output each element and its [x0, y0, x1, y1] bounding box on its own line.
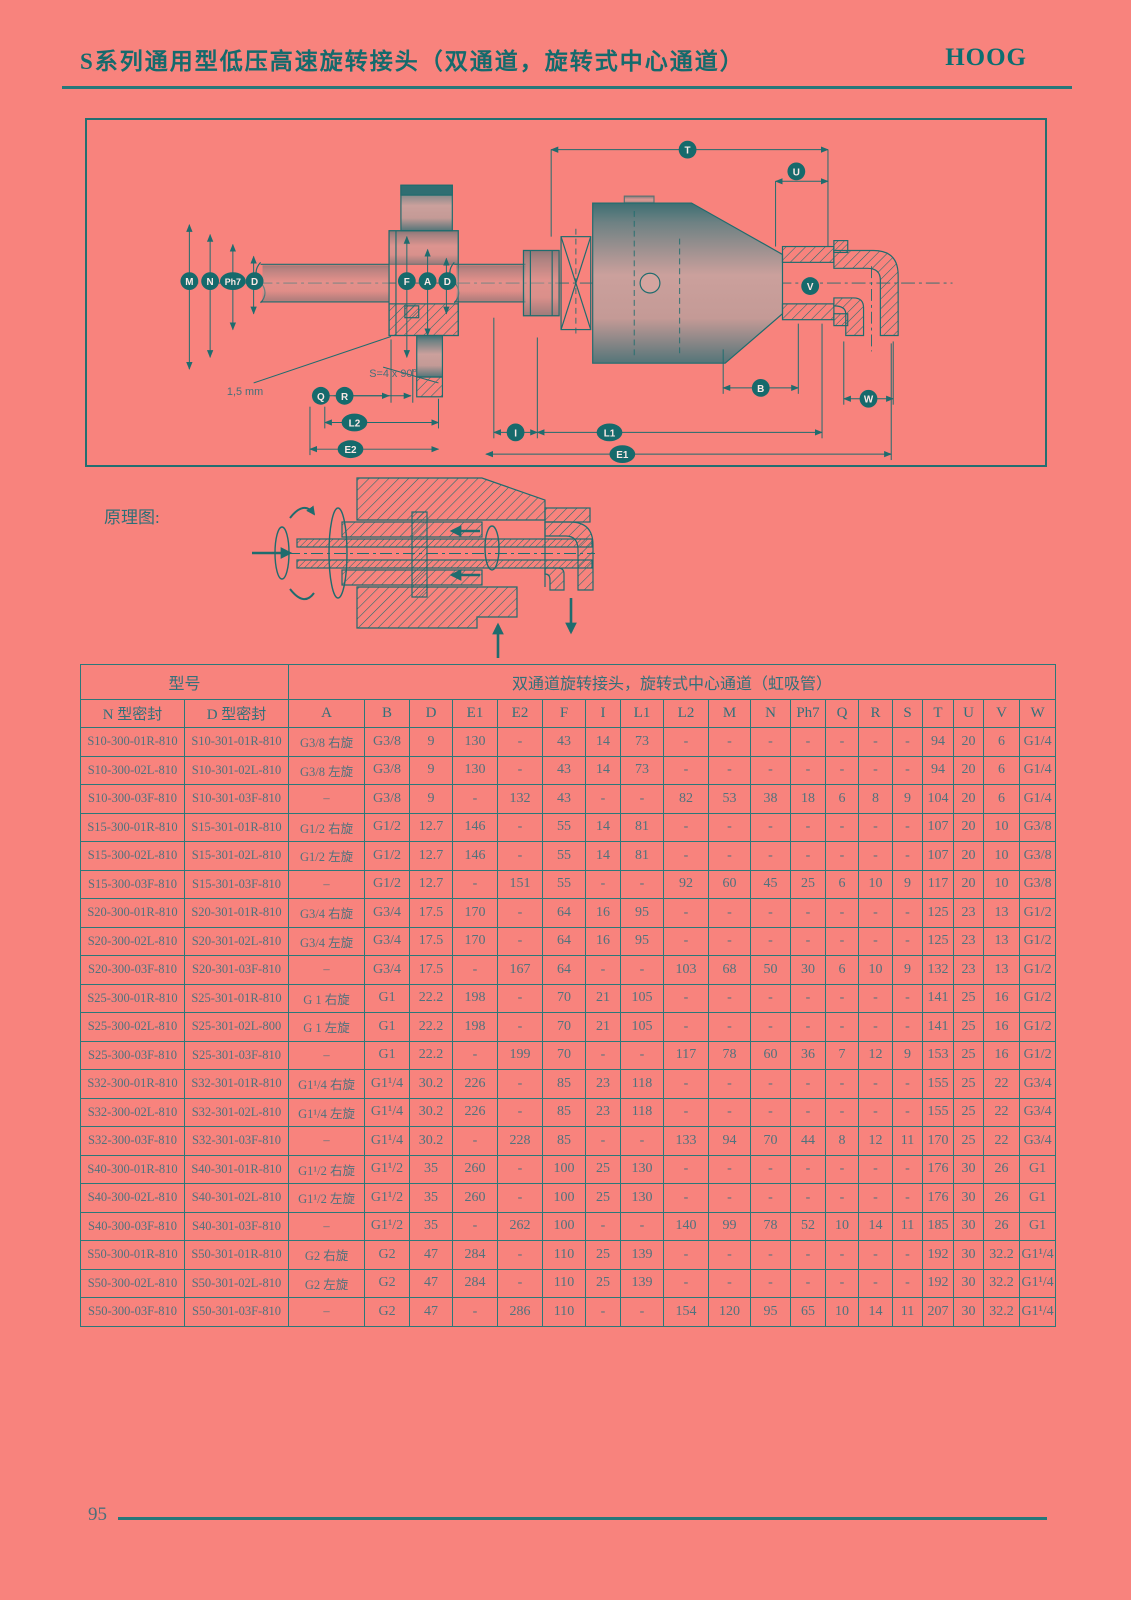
dimension-cell: 17.5 — [410, 956, 453, 985]
dimension-cell: - — [709, 1241, 751, 1270]
model-cell: S25-301-03F-810 — [185, 1041, 289, 1070]
footer-rule — [118, 1517, 1047, 1520]
dimension-cell: 117 — [664, 1041, 709, 1070]
dimension-cell: G1/4 — [1020, 728, 1056, 757]
dimension-cell: G1/2 — [1020, 956, 1056, 985]
table-row: S25-300-02L-810S25-301-02L-800G 1 左旋G122… — [81, 1013, 1056, 1042]
dim-badge-f: F — [398, 272, 416, 290]
dimension-cell: 176 — [923, 1155, 954, 1184]
dimension-cell: 6 — [826, 870, 859, 899]
dimension-cell: G1¹/4 — [365, 1098, 410, 1127]
svg-text:U: U — [793, 167, 800, 178]
dimension-cell: - — [826, 842, 859, 871]
dimension-cell: - — [664, 1070, 709, 1099]
dimension-cell: 55 — [543, 813, 586, 842]
dimension-cell: 23 — [586, 1070, 621, 1099]
dimension-cell: - — [498, 899, 543, 928]
dimension-cell: 70 — [751, 1127, 791, 1156]
dimension-cell: 43 — [543, 785, 586, 814]
dimension-cell: - — [826, 927, 859, 956]
dimension-cell: - — [664, 728, 709, 757]
dimension-cell: 17.5 — [410, 927, 453, 956]
dimension-cell: - — [751, 756, 791, 785]
dimension-cell: 35 — [410, 1212, 453, 1241]
dimension-cell: 20 — [954, 728, 984, 757]
dimension-cell: 30.2 — [410, 1098, 453, 1127]
dimension-cell: 130 — [621, 1184, 664, 1213]
dimension-cell: G3/4 — [1020, 1127, 1056, 1156]
dimension-cell: - — [709, 1098, 751, 1127]
dimension-cell: - — [791, 756, 826, 785]
dimension-cell: 107 — [923, 813, 954, 842]
svg-text:E2: E2 — [344, 445, 357, 456]
model-cell: S50-301-02L-810 — [185, 1269, 289, 1298]
column-header: N 型密封 — [81, 700, 185, 728]
dimension-cell: - — [826, 984, 859, 1013]
dimension-cell: - — [709, 756, 751, 785]
dimension-cell: 78 — [709, 1041, 751, 1070]
dimension-cell: G1¹/2 — [365, 1155, 410, 1184]
dimension-cell: 260 — [453, 1184, 498, 1213]
dimension-cell: 140 — [664, 1212, 709, 1241]
table-row: S32-300-03F-810S32-301-03F-810–G1¹/430.2… — [81, 1127, 1056, 1156]
model-group-header: 型号 — [81, 665, 289, 700]
dim-badge-n: N — [201, 272, 219, 290]
dimension-cell: - — [893, 813, 923, 842]
dimension-cell: 85 — [543, 1127, 586, 1156]
dimension-cell: 94 — [709, 1127, 751, 1156]
dimension-cell: 14 — [859, 1298, 893, 1327]
dimension-cell: – — [289, 870, 365, 899]
dimension-cell: G2 — [365, 1298, 410, 1327]
dimension-cell: 286 — [498, 1298, 543, 1327]
dimension-cell: - — [826, 1241, 859, 1270]
dimension-cell: G1 — [365, 1041, 410, 1070]
svg-text:F: F — [404, 277, 410, 288]
dimension-cell: - — [586, 1041, 621, 1070]
model-cell: S40-301-02L-810 — [185, 1184, 289, 1213]
dim-badge-t: T — [679, 141, 697, 159]
dimension-cell: - — [498, 728, 543, 757]
dimension-cell: 16 — [984, 984, 1020, 1013]
dimension-cell: - — [453, 1127, 498, 1156]
dimension-cell: - — [791, 984, 826, 1013]
dimension-cell: 13 — [984, 899, 1020, 928]
dimension-cell: - — [893, 1155, 923, 1184]
dimension-cell: 12.7 — [410, 842, 453, 871]
dimension-cell: 20 — [954, 842, 984, 871]
dimension-cell: - — [498, 1013, 543, 1042]
dimension-cell: - — [709, 927, 751, 956]
dimension-cell: - — [709, 1070, 751, 1099]
dimension-cell: G1¹/2 右旋 — [289, 1155, 365, 1184]
dimension-cell: 107 — [923, 842, 954, 871]
table-row: S32-300-01R-810S32-301-01R-810G1¹/4 右旋G1… — [81, 1070, 1056, 1099]
dimension-cell: 30 — [954, 1155, 984, 1184]
dimension-cell: 10 — [826, 1298, 859, 1327]
dimension-cell: 13 — [984, 956, 1020, 985]
model-cell: S40-300-01R-810 — [81, 1155, 185, 1184]
dimension-cell: - — [791, 1241, 826, 1270]
dimension-cell: G2 — [365, 1241, 410, 1270]
dimension-cell: 26 — [984, 1184, 1020, 1213]
dimension-cell: 139 — [621, 1241, 664, 1270]
dimension-cell: - — [859, 927, 893, 956]
dimension-cell: 95 — [621, 927, 664, 956]
dimension-cell: - — [791, 899, 826, 928]
dimension-cell: 95 — [621, 899, 664, 928]
dimension-cell: 25 — [586, 1241, 621, 1270]
dimension-cell: - — [664, 1241, 709, 1270]
dimension-cell: 10 — [984, 842, 1020, 871]
svg-text:B: B — [757, 384, 764, 395]
model-cell: S50-301-01R-810 — [185, 1241, 289, 1270]
dimension-cell: - — [826, 1098, 859, 1127]
dimension-cell: 25 — [954, 1041, 984, 1070]
model-cell: S25-301-01R-810 — [185, 984, 289, 1013]
dimension-cell: - — [893, 899, 923, 928]
table-row: S15-300-02L-810S15-301-02L-810G1/2 左旋G1/… — [81, 842, 1056, 871]
dimension-cell: 94 — [923, 728, 954, 757]
svg-text:A: A — [424, 277, 431, 288]
svg-text:L2: L2 — [349, 418, 361, 429]
dimension-cell: - — [621, 1212, 664, 1241]
dimension-cell: 9 — [893, 1041, 923, 1070]
dimension-cell: 132 — [923, 956, 954, 985]
dimension-cell: 146 — [453, 813, 498, 842]
slots-annotation: S=4 x 90° — [369, 368, 417, 380]
dimension-cell: 153 — [923, 1041, 954, 1070]
table-row: S20-300-03F-810S20-301-03F-810–G3/417.5-… — [81, 956, 1056, 985]
dimension-cell: 23 — [954, 899, 984, 928]
dimension-cell: - — [893, 756, 923, 785]
dimension-cell: 32.2 — [984, 1241, 1020, 1270]
dimension-cell: - — [751, 899, 791, 928]
dimension-drawing: M N Ph7 D F A D Q R L2 E2 T U V B W I L1… — [85, 118, 1047, 467]
dimension-cell: - — [664, 927, 709, 956]
nipple-fitting — [523, 250, 559, 315]
dimension-cell: 118 — [621, 1098, 664, 1127]
dimension-cell: 10 — [984, 870, 1020, 899]
dimension-cell: - — [498, 1070, 543, 1099]
dimension-cell: G3/8 — [365, 785, 410, 814]
header-rule — [62, 86, 1072, 89]
dimension-cell: 30 — [954, 1269, 984, 1298]
dimension-cell: 30.2 — [410, 1127, 453, 1156]
dimension-cell: 12 — [859, 1127, 893, 1156]
column-header: D 型密封 — [185, 700, 289, 728]
column-header: W — [1020, 700, 1056, 728]
dimension-cell: 25 — [586, 1269, 621, 1298]
dimension-cell: - — [709, 1155, 751, 1184]
dimension-cell: G1 — [1020, 1155, 1056, 1184]
dimension-cell: 30.2 — [410, 1070, 453, 1099]
dimension-cell: – — [289, 1298, 365, 1327]
dimension-cell: 12 — [859, 1041, 893, 1070]
dimension-cell: 226 — [453, 1098, 498, 1127]
dimension-cell: 192 — [923, 1241, 954, 1270]
dimension-cell: - — [664, 842, 709, 871]
dimension-cell: 130 — [621, 1155, 664, 1184]
dimension-cell: 14 — [859, 1212, 893, 1241]
dim-badge-q: Q — [312, 387, 330, 405]
dimension-cell: - — [709, 984, 751, 1013]
dimension-cell: - — [621, 956, 664, 985]
dimension-cell: 32.2 — [984, 1298, 1020, 1327]
dimension-cell: 94 — [923, 756, 954, 785]
svg-text:N: N — [207, 277, 214, 288]
dimension-cell: 9 — [410, 728, 453, 757]
dimension-cell: - — [664, 813, 709, 842]
column-header: Q — [826, 700, 859, 728]
dimension-cell: G3/8 — [1020, 813, 1056, 842]
dimension-cell: G1¹/2 左旋 — [289, 1184, 365, 1213]
model-cell: S15-301-03F-810 — [185, 870, 289, 899]
dimension-cell: 155 — [923, 1070, 954, 1099]
dimension-cell: 9 — [893, 785, 923, 814]
dimension-cell: - — [751, 813, 791, 842]
dimension-cell: - — [859, 813, 893, 842]
dimension-cell: - — [664, 984, 709, 1013]
dimension-cell: 6 — [984, 756, 1020, 785]
dimension-cell: 8 — [826, 1127, 859, 1156]
dimension-cell: 16 — [984, 1013, 1020, 1042]
dimension-cell: 30 — [954, 1184, 984, 1213]
dimension-cell: - — [826, 1013, 859, 1042]
dimension-cell: - — [826, 1070, 859, 1099]
dimension-cell: 25 — [954, 1098, 984, 1127]
dimension-cell: G3/8 右旋 — [289, 728, 365, 757]
dimension-cell: 146 — [453, 842, 498, 871]
dimension-cell: - — [709, 813, 751, 842]
dimension-cell: G3/4 — [365, 899, 410, 928]
dimension-cell: - — [791, 842, 826, 871]
table-row: S15-300-01R-810S15-301-01R-810G1/2 右旋G1/… — [81, 813, 1056, 842]
dimension-cell: – — [289, 1127, 365, 1156]
dimension-cell: - — [498, 1155, 543, 1184]
dimension-cell: G 1 左旋 — [289, 1013, 365, 1042]
column-header: S — [893, 700, 923, 728]
model-cell: S15-301-01R-810 — [185, 813, 289, 842]
dim-badge-e2: E2 — [338, 440, 364, 458]
dimension-cell: G1¹/2 — [365, 1184, 410, 1213]
model-cell: S50-301-03F-810 — [185, 1298, 289, 1327]
column-header: R — [859, 700, 893, 728]
dimension-cell: 117 — [923, 870, 954, 899]
spec-group-header: 双通道旋转接头，旋转式中心通道（虹吸管） — [289, 665, 1056, 700]
dimension-cell: - — [893, 1184, 923, 1213]
dimension-cell: - — [826, 1269, 859, 1298]
dim-badge-d-left: D — [246, 272, 264, 290]
dimension-cell: G3/8 — [365, 728, 410, 757]
dimension-cell: 22 — [984, 1127, 1020, 1156]
dimension-cell: 11 — [893, 1127, 923, 1156]
dimension-cell: 20 — [954, 756, 984, 785]
dimension-cell: - — [664, 1013, 709, 1042]
dimension-cell: - — [893, 1070, 923, 1099]
dimension-cell: 23 — [586, 1098, 621, 1127]
dimension-cell: 30 — [954, 1212, 984, 1241]
dimension-cell: 70 — [543, 984, 586, 1013]
dimension-cell: 99 — [709, 1212, 751, 1241]
dimension-cell: 64 — [543, 899, 586, 928]
dimension-cell: - — [751, 1013, 791, 1042]
dimension-cell: 25 — [954, 984, 984, 1013]
dimension-cell: 198 — [453, 984, 498, 1013]
model-cell: S10-300-03F-810 — [81, 785, 185, 814]
dimension-cell: - — [859, 899, 893, 928]
dim-badge-u: U — [787, 163, 805, 181]
dimension-cell: - — [859, 1184, 893, 1213]
dimension-cell: 6 — [826, 956, 859, 985]
dimension-cell: G3/8 — [365, 756, 410, 785]
dimension-cell: - — [709, 728, 751, 757]
dimension-cell: - — [859, 1155, 893, 1184]
dimension-cell: - — [498, 984, 543, 1013]
dimension-cell: - — [621, 1041, 664, 1070]
model-cell: S20-300-03F-810 — [81, 956, 185, 985]
model-cell: S15-300-03F-810 — [81, 870, 185, 899]
dimension-cell: - — [826, 813, 859, 842]
dimension-cell: G3/4 — [1020, 1098, 1056, 1127]
dimension-cell: 23 — [954, 927, 984, 956]
dimension-cell: - — [498, 1184, 543, 1213]
dimension-cell: 151 — [498, 870, 543, 899]
dimension-cell: 78 — [751, 1212, 791, 1241]
dimension-cell: 14 — [586, 756, 621, 785]
dimension-cell: 110 — [543, 1269, 586, 1298]
column-header: D — [410, 700, 453, 728]
dimension-cell: 110 — [543, 1241, 586, 1270]
dimension-cell: 10 — [984, 813, 1020, 842]
table-row: S50-300-02L-810S50-301-02L-810G2 左旋G2472… — [81, 1269, 1056, 1298]
flange-cross-section — [389, 185, 458, 397]
dimension-cell: - — [826, 1184, 859, 1213]
dimension-cell: 20 — [954, 870, 984, 899]
svg-text:R: R — [341, 392, 348, 403]
brand-logo: HOOG — [945, 44, 1027, 72]
dim-badge-r: R — [336, 387, 354, 405]
dimension-cell: - — [893, 842, 923, 871]
dimension-cell: G2 — [365, 1269, 410, 1298]
dimension-cell: 30 — [954, 1298, 984, 1327]
model-cell: S50-300-02L-810 — [81, 1269, 185, 1298]
table-row: S40-300-03F-810S40-301-03F-810–G1¹/235-2… — [81, 1212, 1056, 1241]
dimension-cell: 25 — [954, 1127, 984, 1156]
dimension-cell: 22.2 — [410, 1013, 453, 1042]
dimension-cell: 47 — [410, 1269, 453, 1298]
dimension-cell: G3/8 — [1020, 870, 1056, 899]
dimension-cell: 12.7 — [410, 870, 453, 899]
elbow-fitting — [834, 250, 898, 351]
dimension-cell: 6 — [826, 785, 859, 814]
table-row: S50-300-01R-810S50-301-01R-810G2 右旋G2472… — [81, 1241, 1056, 1270]
dimension-cell: - — [498, 927, 543, 956]
model-cell: S20-301-03F-810 — [185, 956, 289, 985]
dimension-cell: 20 — [954, 813, 984, 842]
dimension-cell: - — [791, 728, 826, 757]
column-header: Ph7 — [791, 700, 826, 728]
dimension-cell: 60 — [709, 870, 751, 899]
dimension-cell: G1/2 — [1020, 927, 1056, 956]
dimension-cell: - — [621, 1127, 664, 1156]
dimension-cell: - — [791, 1013, 826, 1042]
model-cell: S25-300-02L-810 — [81, 1013, 185, 1042]
dimension-cell: 23 — [954, 956, 984, 985]
model-cell: S32-300-02L-810 — [81, 1098, 185, 1127]
dimension-cell: - — [859, 756, 893, 785]
dimension-cell: 70 — [543, 1041, 586, 1070]
dimension-cell: G1¹/4 — [365, 1070, 410, 1099]
dimension-cell: - — [586, 1298, 621, 1327]
dimension-cell: 64 — [543, 956, 586, 985]
dimension-cell: - — [826, 728, 859, 757]
dimension-cell: 10 — [826, 1212, 859, 1241]
dimension-cell: 26 — [984, 1155, 1020, 1184]
dimension-cell: - — [751, 1155, 791, 1184]
dimension-cell: - — [859, 1241, 893, 1270]
dimension-cell: - — [664, 1184, 709, 1213]
dim-badge-i: I — [507, 423, 525, 441]
model-cell: S32-301-03F-810 — [185, 1127, 289, 1156]
dimension-cell: - — [498, 1269, 543, 1298]
column-header: A — [289, 700, 365, 728]
dimension-cell: G1¹/4 右旋 — [289, 1070, 365, 1099]
dim-badge-ph7: Ph7 — [220, 272, 246, 290]
dimension-cell: - — [586, 956, 621, 985]
model-cell: S32-300-03F-810 — [81, 1127, 185, 1156]
dimension-cell: 43 — [543, 756, 586, 785]
dimension-cell: - — [893, 984, 923, 1013]
dimension-cell: - — [709, 842, 751, 871]
dimension-cell: - — [664, 899, 709, 928]
dimension-cell: – — [289, 956, 365, 985]
dimension-cell: 25 — [954, 1070, 984, 1099]
dimension-cell: G1 — [1020, 1212, 1056, 1241]
dimension-cell: 9 — [893, 956, 923, 985]
dimension-cell: - — [621, 785, 664, 814]
svg-text:T: T — [685, 146, 691, 157]
dimension-cell: – — [289, 1212, 365, 1241]
dimension-cell: - — [791, 1184, 826, 1213]
model-cell: S20-300-01R-810 — [81, 899, 185, 928]
dimension-cell: - — [893, 1269, 923, 1298]
dimension-cell: - — [791, 1155, 826, 1184]
dimension-cell: 11 — [893, 1212, 923, 1241]
dimension-cell: G1¹/4 左旋 — [289, 1098, 365, 1127]
column-header: U — [954, 700, 984, 728]
dimension-cell: G3/4 — [365, 956, 410, 985]
dimension-cell: 170 — [453, 927, 498, 956]
dimension-cell: 125 — [923, 899, 954, 928]
dimension-cell: - — [751, 842, 791, 871]
dimension-cell: - — [621, 870, 664, 899]
model-cell: S25-300-03F-810 — [81, 1041, 185, 1070]
column-header: E2 — [498, 700, 543, 728]
dimension-cell: 105 — [621, 984, 664, 1013]
dimension-cell: - — [498, 1241, 543, 1270]
svg-text:Ph7: Ph7 — [225, 277, 241, 287]
dimension-cell: 45 — [751, 870, 791, 899]
dim-badge-b: B — [752, 379, 770, 397]
dimension-cell: 25 — [954, 1013, 984, 1042]
dim-badge-l2: L2 — [342, 414, 368, 432]
dimension-cell: - — [664, 1098, 709, 1127]
dimension-cell: 21 — [586, 984, 621, 1013]
dimension-cell: 22.2 — [410, 1041, 453, 1070]
column-header: N — [751, 700, 791, 728]
dimension-cell: – — [289, 785, 365, 814]
